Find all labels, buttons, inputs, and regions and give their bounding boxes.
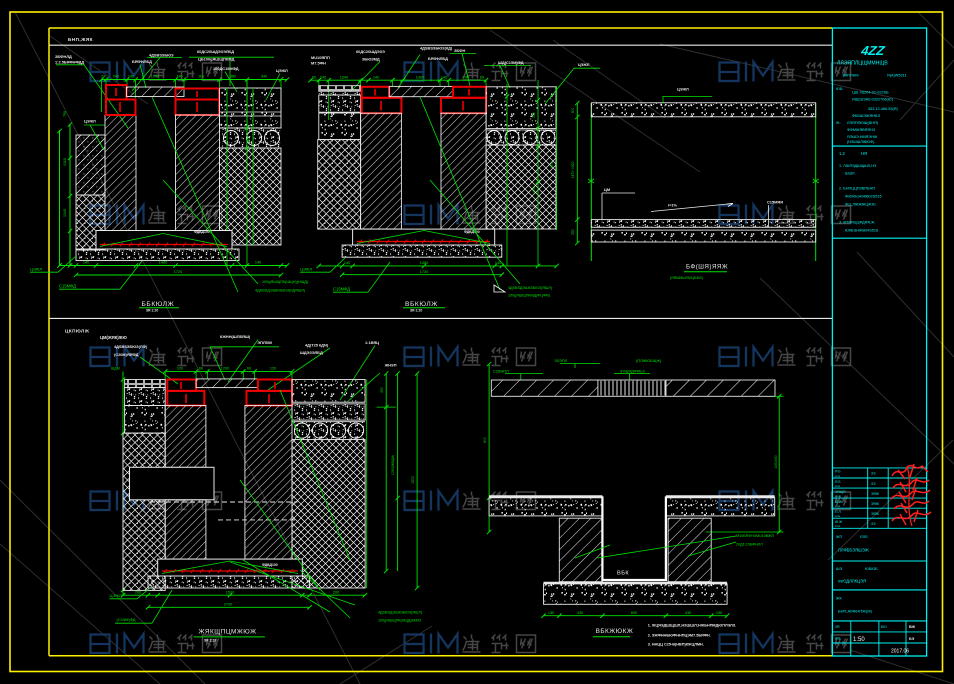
svg-text:M7.5ФН: M7.5ФН — [311, 61, 326, 66]
svg-text:xxЮДЛЛКЦЭЯ: xxЮДЛЛКЦЭЯ — [838, 579, 866, 584]
svg-text:ВЖ: ВЖ — [909, 625, 916, 629]
svg-text:ЖК: ЖК — [836, 597, 843, 601]
svg-text:60: 60 — [247, 367, 251, 371]
svg-text:ЗЯ: ЗЯ — [835, 625, 840, 629]
svg-text:БФ(ШЯ)ЯЯЖ: БФ(ШЯ)ЯЯЖ — [686, 264, 728, 271]
svg-text:1720: 1720 — [420, 270, 428, 274]
svg-text:120: 120 — [270, 367, 276, 371]
svg-text:1470~1520: 1470~1520 — [571, 161, 575, 178]
svg-text:ФФМЖЯВЯЯНЗ: ФФМЖЯВЯЯНЗ — [847, 128, 876, 132]
svg-text:ЦЭЖЛ: ЦЭЖЛ — [300, 267, 312, 272]
svg-text:Ш Ж: Ш Ж — [835, 500, 843, 504]
svg-text:ЦБ100gЯШЩПКМД: ЦБ100gЯШЩПКМД — [198, 56, 235, 61]
svg-text:4ДSBSЗБЮЗ: 4ДSBSЗБЮЗ — [149, 52, 174, 57]
svg-text:ЮКБЭНЖВ04S516.: ЮКБЭНЖВ04S516. — [845, 229, 879, 233]
svg-text:ЗЯ 1:20: ЗЯ 1:20 — [410, 309, 422, 313]
svg-text:1240: 1240 — [151, 75, 159, 79]
svg-text:ЖБ: ЖБ — [835, 637, 841, 641]
svg-text:140: 140 — [344, 261, 350, 265]
svg-text:60ДC20ШДЭЗЭЛБД: 60ДC20ШДЭЗЭЛБД — [197, 49, 234, 54]
svg-text:140: 140 — [83, 261, 89, 265]
svg-text:ШД(C15М)ФД: ШД(C15М)ФД — [498, 60, 524, 65]
svg-text:453.12-466.53(Я): 453.12-466.53(Я) — [868, 107, 898, 111]
svg-text:1300: 1300 — [416, 75, 424, 79]
svg-text:250: 250 — [532, 112, 536, 118]
svg-text:ЛЛФББЭЯШЭЖ: ЛЛФББЭЯШЭЖ — [838, 548, 869, 553]
svg-text:ЗБФНЛД: ЗБФНЛД — [55, 54, 72, 59]
svg-text:250: 250 — [380, 387, 384, 393]
svg-text:1.2: 1.2 — [839, 151, 845, 156]
svg-text:1:1ВЯЦ: 1:1ВЯЦ — [365, 340, 379, 345]
svg-text:140: 140 — [255, 261, 261, 265]
svg-text:ЛЛЭЯПЛЦЩММНЩВ: ЛЛЭЯПЛЦЩММНЩВ — [837, 61, 888, 67]
svg-text:xxxx: xxxx — [835, 505, 841, 508]
svg-text:60: 60 — [199, 367, 203, 371]
svg-text:xxxx: xxxx — [835, 525, 841, 528]
svg-text:120: 120 — [177, 367, 183, 371]
svg-text:4ДSBSЗБЮЗ(IIД): 4ДSBSЗБЮЗ(IIД) — [420, 46, 453, 51]
svg-text:1050: 1050 — [532, 186, 536, 194]
svg-text:ЦМ: ЦМ — [604, 187, 610, 192]
svg-text:380: 380 — [230, 75, 236, 79]
svg-text:Я Б: Я Б — [835, 480, 841, 484]
svg-text:ЭПЛ500: ЭПЛ500 — [257, 340, 272, 345]
svg-text:xxxx: xxxx — [835, 475, 841, 478]
svg-text:1050(МВЦМ): 1050(МВЦМ) — [391, 455, 395, 475]
svg-text:60: 60 — [480, 75, 484, 79]
svg-text:1. ЖЦЯЭДШЩШЛ,НЗШШЛ;HЖБНПМДЮПЛЭ: 1. ЖЦЯЭДШЩШЛ,НЗШШЛ;HЖБНПМДЮПЛЭЛЗ. — [648, 624, 737, 628]
svg-text:i=1%: i=1% — [668, 203, 678, 208]
svg-text:1:50: 1:50 — [853, 637, 865, 643]
svg-text:4ДSBSДЭШКЗБЮЗ(ЯШЛ): 4ДSBSДЭШКЗБЮЗ(ЯШЛ) — [378, 611, 422, 615]
svg-text:ЖЮКБЭНЖВ02S515: ЖЮКБЭНЖВ02S515 — [845, 195, 882, 199]
svg-text:ЦЭЖЛ: ЦЭЖЛ — [578, 63, 590, 67]
svg-text:ШШЛ.: ШШЛ. — [845, 172, 856, 176]
svg-text:60: 60 — [312, 75, 316, 79]
svg-text:ФДВД100: ФДВД100 — [194, 230, 210, 234]
svg-text:1060±50: 1060±50 — [774, 455, 778, 468]
svg-text:(ЯЯШМШЛЮЦБЖБ): (ЯЯШМШЛЮЦБЖБ) — [670, 276, 703, 280]
svg-text:1. ЛЖЯЭДШЩШЛ,НЗ: 1. ЛЖЯЭДШЩШЛ,НЗ — [839, 164, 877, 168]
svg-text:110: 110 — [198, 75, 204, 79]
svg-text:2. ЗЖФННБЮФННПЦЭM7.5БЯФН.: 2. ЗЖФННБЮФННПЦЭM7.5БЯФН. — [648, 634, 711, 638]
svg-text:240: 240 — [113, 75, 119, 79]
svg-text:1480: 1480 — [420, 261, 428, 265]
svg-text:БНП,ЖЯКНПЖ(М): БНП,ЖЯКНПЖ(М) — [838, 609, 873, 614]
svg-text:ЦЭЖЛ: ЦЭЖЛ — [30, 267, 42, 272]
svg-text:ШДЭЗЭЛБД: ШДЭЗЭЛБД — [300, 350, 323, 355]
svg-text:4ZZ: 4ZZ — [859, 43, 886, 58]
svg-text:750: 750 — [63, 111, 67, 117]
svg-text:ЭЯЖ: ЭЯЖ — [871, 502, 880, 506]
svg-text:MU10ЯПП: MU10ЯПП — [311, 55, 330, 60]
svg-text:2700: 2700 — [224, 603, 232, 607]
svg-text:150: 150 — [548, 611, 554, 615]
svg-text:100gЯШЩПК(НЩД)ККМЗ: 100gЯШЩПК(НЩД)ККМЗ — [378, 619, 422, 623]
svg-text:ЗБЮЗМД: ЗБЮЗМД — [362, 56, 380, 61]
svg-text:140: 140 — [128, 75, 134, 79]
svg-text:(ПЛЖЮБЩЖ): (ПЛЖЮБЩЖ) — [636, 358, 662, 363]
svg-text:M10БЯФНЗMU10ВЖП: M10БЯФНЗMU10ВЖП — [736, 534, 775, 538]
svg-text:20Д1:2ЗБФНЛЛ: 20Д1:2ЗБФНЛЛ — [736, 543, 763, 547]
svg-text:ББКЮЛЖ: ББКЮЛЖ — [142, 301, 175, 308]
svg-text:ЗЯ 1:20: ЗЯ 1:20 — [146, 309, 158, 313]
svg-text:ЛЛS: ЛЛS — [860, 535, 868, 539]
svg-text:БЮ: БЮ — [881, 625, 887, 629]
svg-text:НЯ: НЯ — [861, 151, 867, 156]
svg-text:C25МПЛ: C25МПЛ — [493, 369, 509, 374]
svg-text:(C15М)ФД: (C15М)ФД — [117, 617, 136, 622]
svg-text:3. ННЦЦ C25-B(НВП)КЖЦЛМН.: 3. ННЦЦ C25-B(НВП)КЖЦЛМН. — [648, 643, 704, 647]
svg-text:ЮБЮБ: ЮБЮБ — [865, 567, 878, 571]
svg-text:ЭЗЭПЛ: ЭЗЭПЛ — [554, 358, 568, 363]
svg-text:600: 600 — [483, 437, 487, 443]
svg-text:ЗЭ: ЗЭ — [871, 482, 876, 486]
svg-text:340: 340 — [261, 75, 267, 79]
svg-text:ВБКЮЛЖ: ВБКЮЛЖ — [405, 301, 438, 308]
svg-text:4ДSBSЗБЮЗ(ЛФ): 4ДSBSЗБЮЗ(ЛФ) — [114, 344, 148, 349]
svg-text:БЯФНЛБД: БЯФНЛБД — [132, 59, 152, 64]
svg-text:1240: 1240 — [340, 75, 348, 79]
svg-text:4ДSBSДЭШКЗБЮЗ(IIДЯШЛ): 4ДSBSДЭШКЗБЮЗ(IIДЯШЛ) — [255, 289, 306, 293]
svg-text:ЯШ(ШЭЖ)-0322706(Ю): ЯШ(ШЭЖ)-0322706(Ю) — [852, 98, 894, 102]
svg-text:ЮБ:: ЮБ: — [836, 87, 843, 91]
svg-text:КЖНН(ШЛБЯШ): КЖНН(ШЛБЯШ) — [220, 334, 251, 339]
svg-text:ВБК: ВБК — [617, 571, 629, 577]
svg-text:Я Б: Я Б — [835, 470, 841, 474]
svg-text:Ж:: Ж: — [836, 121, 841, 125]
svg-text:140: 140 — [373, 75, 379, 79]
svg-text:ЭЯЩП: ЭЯЩП — [835, 490, 846, 494]
svg-text:100gЯШЩПК(ШЦН)(НЩД): 100gЯШЩПК(ШЦН)(НЩД) — [262, 280, 309, 284]
svg-text:1:2.5БЯФНФДД: 1:2.5БЯФНФДД — [55, 59, 84, 64]
svg-text:ФДВД100: ФДВД100 — [464, 230, 480, 234]
svg-text:1480: 1480 — [159, 261, 167, 265]
svg-text:ШДМ: ШДМ — [111, 367, 120, 371]
svg-text:1200: 1200 — [221, 367, 229, 371]
svg-text:ЗЯ 1:20: ЗЯ 1:20 — [204, 639, 216, 643]
svg-text:ЗБФН: ЗБФН — [454, 48, 466, 53]
svg-text:ЛЭЯПЛЮШ(ВНЯ): ЛЭЯПЛЮШ(ВНЯ) — [847, 121, 879, 125]
svg-text:1500: 1500 — [226, 590, 234, 594]
svg-text:3. КПЯЯЦЦФДЯЯ,Ж: 3. КПЯЯЦЦФДЯЯ,Ж — [839, 221, 875, 225]
svg-text:240: 240 — [320, 75, 326, 79]
svg-text:ЭЯЖ: ЭЯЖ — [871, 512, 880, 516]
svg-text:430: 430 — [577, 611, 583, 615]
svg-text:xxxx: xxxx — [835, 485, 841, 488]
svg-text:ЖЯКЩПЦМЖЮЖ: ЖЯКЩПЦМЖЮЖ — [199, 628, 257, 635]
svg-text:ЖЦ,ЛЖЖЖЦЖЮ.: ЖЦ,ЛЖЖЖЦЖЮ. — [845, 203, 877, 207]
svg-text:300: 300 — [571, 108, 575, 114]
svg-text:П Л: П Л — [835, 510, 841, 514]
svg-text:ЯЭШЭ,НМЯЭНЖ: ЯЭШЭ,НМЯЭНЖ — [847, 135, 878, 139]
svg-text:ЖНЭП: ЖНЭП — [384, 363, 397, 368]
svg-text:250: 250 — [571, 229, 575, 235]
svg-text:100ДC15МФД: 100ДC15МФД — [213, 66, 239, 71]
svg-text:(C20М)ЯЯФД: (C20М)ЯЯФД — [114, 352, 139, 357]
svg-text:БЯФНЛБД: БЯФНЛБД — [428, 56, 448, 61]
svg-text:ВБКЖЮКЖ: ВБКЖЮКЖ — [596, 628, 634, 635]
svg-text:ЖП: ЖП — [836, 535, 843, 539]
svg-text:ЦЭЖЛ: ЦЭЖЛ — [84, 118, 96, 123]
svg-text:ЗЭ: ЗЭ — [871, 472, 876, 476]
svg-text:2. БНПЦЦПЗВПБНП: 2. БНПЦЦПЗВПБНП — [839, 187, 875, 191]
svg-text:200: 200 — [135, 590, 141, 594]
svg-text:ЦМ(ЖЯК)ЖЮ: ЦМ(ЖЯК)ЖЮ — [100, 335, 127, 340]
svg-text:БНП,ЖЯК: БНП,ЖЯК — [68, 37, 93, 42]
svg-text:3%БЯДФФБЭ: 3%БЯДФФБЭ — [620, 369, 645, 374]
svg-text:140: 140 — [441, 75, 447, 79]
svg-text:(НЗШШЛЖЮФ).: (НЗШШЛЖЮФ). — [847, 140, 875, 144]
svg-text:ФДВД100: ФДВД100 — [262, 563, 278, 567]
svg-text:150: 150 — [716, 611, 722, 615]
svg-text:1500: 1500 — [550, 161, 554, 169]
svg-text:400: 400 — [247, 137, 251, 143]
svg-text:430: 430 — [685, 611, 691, 615]
svg-text:ЦКПЮЛЖ: ЦКПЮЛЖ — [65, 329, 90, 334]
svg-text:ФББШЭЖЯНБЛ: ФББШЭЖЯНБЛ — [852, 114, 881, 118]
svg-text:C15МФД: C15МФД — [59, 284, 76, 289]
svg-text:xxxx: xxxx — [835, 515, 841, 518]
svg-text:БЭ: БЭ — [909, 637, 915, 641]
svg-text:xxxx: xxxx — [835, 495, 841, 498]
svg-text:ЦЭЖЛ: ЦЭЖЛ — [276, 68, 288, 73]
svg-text:24: 24 — [101, 75, 105, 79]
svg-text:4110: 4110 — [63, 158, 67, 166]
svg-text:200: 200 — [333, 590, 339, 594]
svg-text:ЗЭ: ЗЭ — [871, 522, 876, 526]
svg-text:1500: 1500 — [411, 476, 415, 484]
svg-text:Я(A)W5311: Я(A)W5311 — [887, 74, 907, 78]
svg-text:ШЭ: ШЭ — [836, 567, 842, 571]
svg-text:ЦЭЖЛ: ЦЭЖЛ — [677, 87, 689, 92]
svg-text:4ДSBSДЭШКЗБЮЗ(ЯШЛ): 4ДSBSДЭШКЗБЮЗ(ЯШЛ) — [508, 286, 552, 290]
svg-text:600: 600 — [631, 611, 637, 615]
svg-text:ЦШ ЗS204-01-022SБ: ЦШ ЗS204-01-022SБ — [852, 91, 889, 95]
svg-text:1720: 1720 — [174, 270, 182, 274]
svg-text:1340: 1340 — [63, 209, 67, 217]
svg-text:ЭЯПЛНМ: ЭЯПЛНМ — [842, 74, 859, 78]
svg-text:4Д(T25 6ДN): 4Д(T25 6ДN) — [305, 343, 329, 348]
svg-text:C15МФД: C15МФД — [333, 287, 350, 292]
svg-text:ЦЭЖЛ: ЦЭЖЛ — [110, 593, 122, 598]
svg-text:60ДC20ШДЭЗЭ: 60ДC20ШДЭЗЭ — [356, 49, 385, 54]
svg-text:2017.06: 2017.06 — [891, 649, 909, 655]
svg-text:C15МЯЯ: C15МЯЯ — [767, 200, 783, 205]
svg-text:Ж Ж: Ж Ж — [835, 520, 843, 524]
svg-text:ЭЯЖ: ЭЯЖ — [871, 492, 880, 496]
svg-text:100gЯШЩПКМД(ФЦФМ): 100gЯШЩПКМД(ФЦФМ) — [508, 294, 550, 298]
svg-text:140: 140 — [176, 75, 182, 79]
